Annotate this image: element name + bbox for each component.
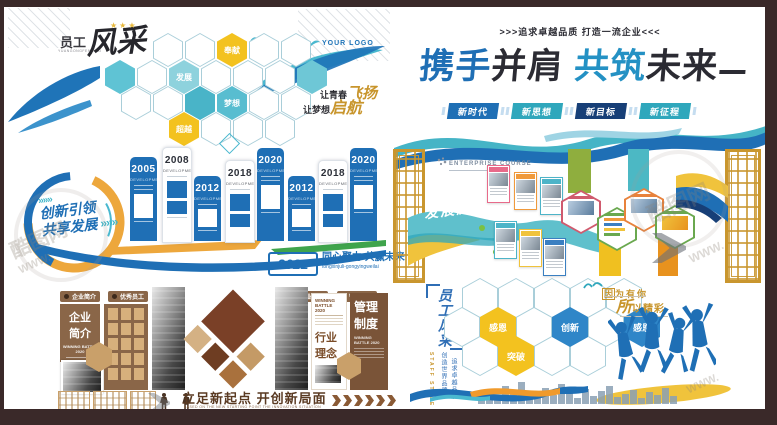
- title-seg-dark: 并肩: [490, 47, 565, 86]
- skyline-building: [662, 388, 669, 404]
- photo-tile: [121, 338, 131, 350]
- mosaic-tile: [237, 343, 265, 371]
- frame-bottom: [0, 409, 777, 425]
- tab-excellent-staff: 优秀员工: [108, 291, 148, 302]
- title-underline: [720, 70, 746, 74]
- timeline-column: 2020DEVELOPMENT: [350, 148, 377, 241]
- skyline-building: [638, 398, 645, 404]
- frame-left: [0, 0, 4, 425]
- milestone-card: [487, 165, 510, 203]
- hexagon-outline: [201, 60, 231, 94]
- slogan-line2: 让梦想启航: [303, 100, 362, 116]
- photo-tile: [134, 353, 144, 365]
- milestone-card: [540, 177, 563, 215]
- blue-swoosh-left: [6, 60, 102, 134]
- skyline-building: [606, 386, 613, 404]
- milestone-card: [519, 229, 542, 267]
- photo-tile: [108, 323, 118, 335]
- photo-tile: [121, 308, 131, 320]
- color-bar-olive: [568, 149, 591, 193]
- year-badge: 2022: [268, 252, 318, 276]
- hexagon-word: 奉献: [217, 33, 247, 67]
- dots-cluster-icon: [436, 156, 448, 168]
- hexagon-filled: [185, 86, 215, 120]
- timeline-column: 2018DEVELOPMENT: [225, 160, 255, 243]
- hexagon-word: 超越: [169, 112, 199, 146]
- milestone-card: [543, 238, 566, 276]
- hexagon-word: 梦想: [217, 86, 247, 120]
- skyline-building: [614, 397, 621, 404]
- photo-tile: [134, 308, 144, 320]
- timeline-column: 2005DEVELOPMENT: [130, 157, 157, 241]
- hexagon-word: 发展: [169, 60, 199, 94]
- building-photo: [152, 287, 185, 390]
- diamond-outline-decoration: [219, 133, 240, 154]
- timeline-column: 2018DEVELOPMENT: [318, 160, 348, 243]
- wave-ribbon-bottom: [410, 376, 590, 410]
- photo-tile: [121, 353, 131, 365]
- title-seg-blue: 携手: [418, 47, 493, 86]
- title-seg-teal: 共筑: [573, 47, 648, 86]
- diamond-mosaic: [184, 290, 283, 389]
- skyline-building: [598, 391, 605, 404]
- bracket-corner: [450, 336, 464, 350]
- hexagon-outline: [153, 86, 183, 120]
- staff-title-prefix: 员工: [60, 36, 86, 49]
- hexagon-outline: [121, 86, 151, 120]
- timeline-column: 2012DEVELOPMENT: [288, 176, 315, 241]
- logo-swoosh-icon: [310, 38, 321, 47]
- lattice-frame-right: [725, 149, 761, 283]
- stars-decoration: ★★★: [110, 22, 138, 30]
- year-badge-text: 2022: [277, 256, 308, 272]
- photo-grid: [108, 308, 144, 380]
- skyline-building: [646, 392, 653, 404]
- hexagon-outline: [185, 33, 215, 67]
- timeline-column: 2020DEVELOPMENT: [257, 148, 284, 241]
- staff-photo-grid-panel: [104, 304, 148, 390]
- watermark-circle: [630, 150, 728, 248]
- design-sheet-canvas: 员工 YUANGONGFENGCAI 风采 ★★★ YOUR LOGO 奉献 发…: [0, 0, 777, 425]
- hexagon-outline: [137, 60, 167, 94]
- mosaic-tile: [201, 290, 265, 354]
- hexagon-word: 创新: [552, 307, 588, 347]
- title-seg-dark2: 未来: [645, 47, 720, 86]
- photo-tile: [108, 308, 118, 320]
- hexagon-outline: [153, 33, 183, 67]
- footer-slogan: 立足新起点 开创新局面: [182, 392, 327, 405]
- photo-tile: [134, 338, 144, 350]
- tab-company-profile: 企业简介: [60, 291, 100, 302]
- banner-title: 携手并肩 共筑未来: [400, 46, 765, 84]
- vertical-title: 员工风采: [437, 288, 451, 348]
- mosaic-tile: [219, 360, 247, 388]
- skyline-building: [630, 390, 637, 404]
- frame-top: [0, 0, 777, 7]
- hexagon-outline: [265, 112, 295, 146]
- vertical-title-frame: 员工风采: [426, 284, 464, 350]
- photo-tile: [108, 368, 118, 380]
- skyline-building: [622, 394, 629, 404]
- bullet-icon: [64, 294, 69, 299]
- photo-tile: [121, 323, 131, 335]
- skyline-building: [670, 396, 677, 404]
- skyline-building: [654, 395, 661, 404]
- building-photo: [275, 287, 308, 390]
- frame-right: [765, 0, 777, 425]
- logo-text: YOUR LOGO: [322, 40, 374, 47]
- birds-icon: [250, 34, 270, 44]
- skyline-building: [590, 396, 597, 404]
- watermark-circle: [14, 188, 108, 282]
- timeline-slogan-pinyin: tongxinjuli-gongyingweilai: [322, 265, 379, 270]
- photo-tile: [134, 368, 144, 380]
- hexagon-filled: [105, 60, 135, 94]
- milestone-card: [494, 221, 517, 259]
- milestone-card: [514, 172, 537, 210]
- photo-tile: [134, 323, 144, 335]
- timeline-column: 2008DEVELOPMENT: [162, 147, 192, 243]
- photo-tile: [121, 368, 131, 380]
- staff-title-main: 风采: [85, 26, 147, 60]
- bullet-icon: [112, 294, 117, 299]
- timeline-column: 2012DEVELOPMENT: [194, 176, 221, 241]
- banner-eyebrow: >>>追求卓越品质 打造一流企业<<<: [400, 28, 760, 37]
